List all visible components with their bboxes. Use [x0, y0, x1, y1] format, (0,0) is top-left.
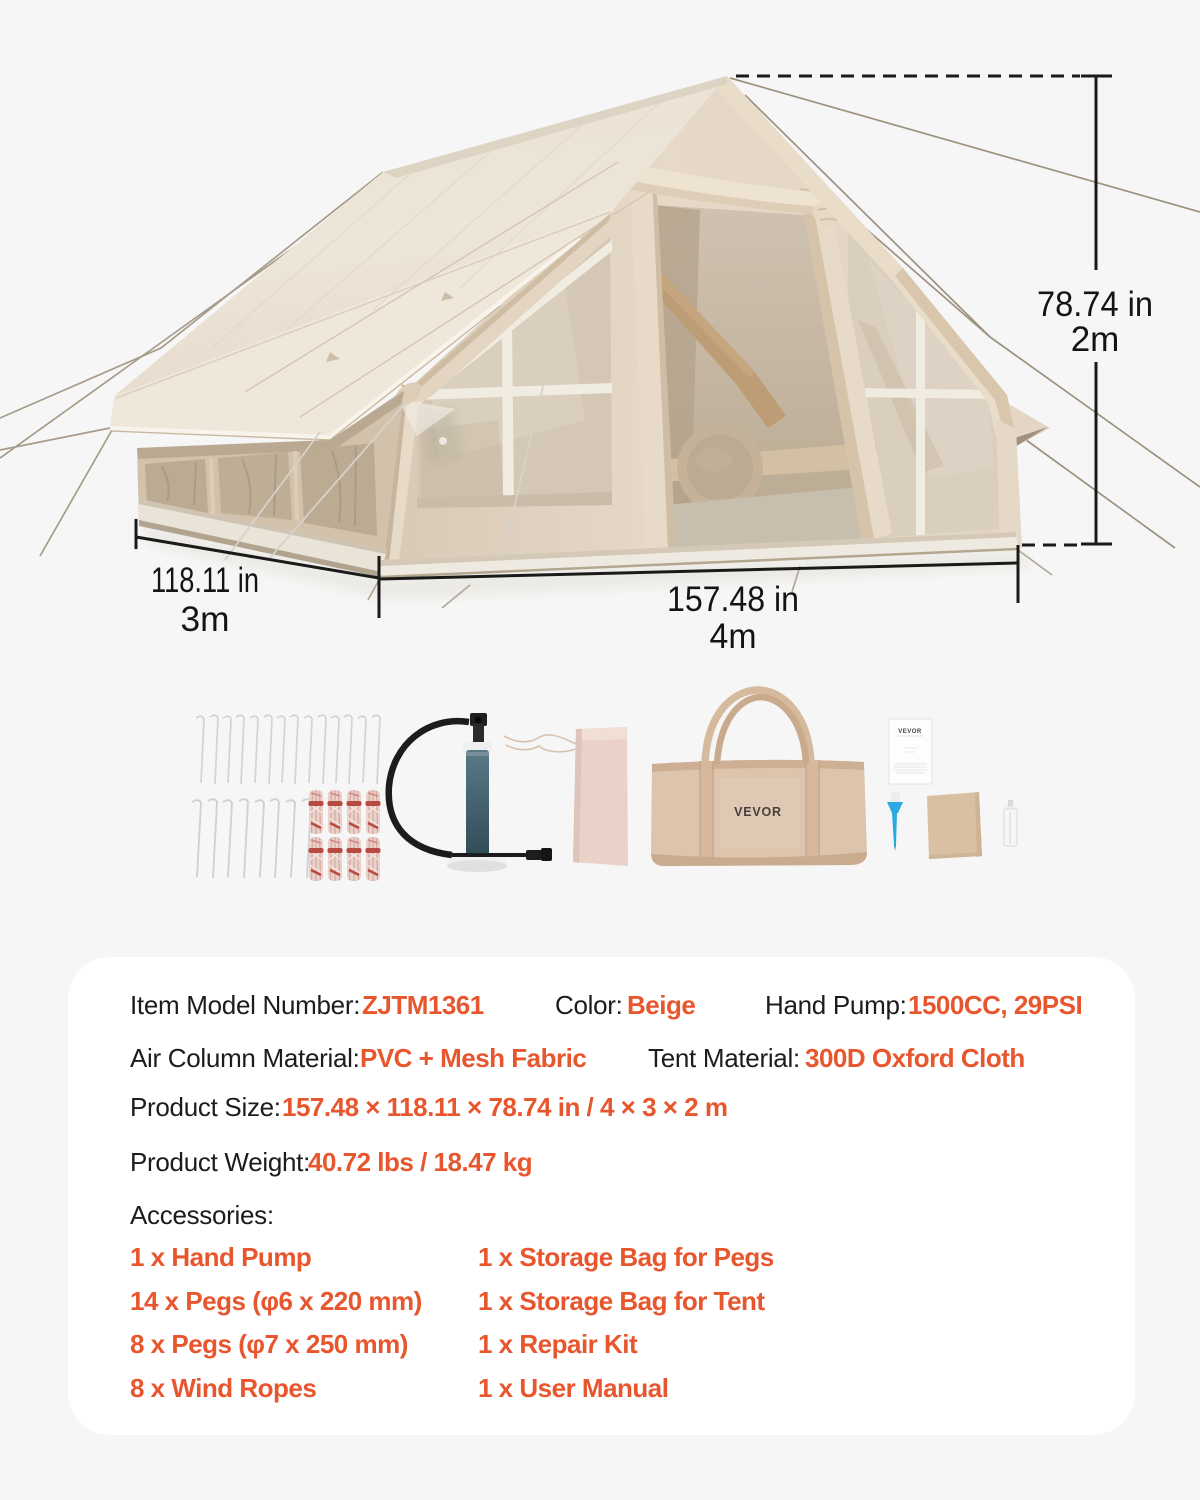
svg-text:4m: 4m: [710, 617, 757, 656]
svg-text:VEVOR: VEVOR: [734, 805, 782, 819]
svg-text:118.11 in: 118.11 in: [151, 561, 259, 600]
svg-text:157.48 in: 157.48 in: [667, 580, 799, 619]
svg-text:78.74 in: 78.74 in: [1037, 285, 1153, 324]
svg-text:2m: 2m: [1071, 320, 1120, 359]
svg-text:3m: 3m: [181, 600, 230, 639]
svg-text:VEVOR: VEVOR: [898, 729, 922, 735]
